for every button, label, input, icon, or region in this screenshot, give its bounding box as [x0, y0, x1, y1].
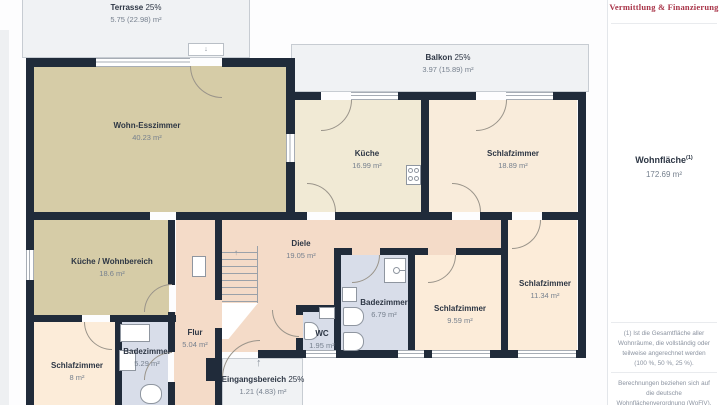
wall-segment	[334, 248, 341, 352]
wall-segment	[578, 92, 586, 358]
window	[506, 92, 553, 100]
room-label-badezimmer-679: Badezimmer 6.79 m²	[360, 297, 408, 320]
wall-segment	[480, 212, 512, 220]
footnote-calculation: Berechnungen beziehen sich auf die deuts…	[616, 379, 712, 405]
wall-segment	[26, 58, 34, 405]
divider	[611, 23, 717, 24]
floor-plan-page: ↑	[0, 0, 720, 405]
room-label-schlafzimmer-1134: Schlafzimmer 11.34 m²	[519, 278, 571, 301]
sink-icon	[319, 307, 335, 319]
divider	[611, 322, 717, 323]
window	[351, 92, 398, 100]
room-label-wc: WC 1.95 m²	[309, 328, 334, 351]
window	[286, 134, 295, 162]
wall-segment	[490, 350, 518, 358]
room-label-kueche: Küche 16.99 m²	[352, 148, 382, 171]
staircase	[222, 246, 258, 303]
window	[26, 250, 34, 280]
wall-segment	[398, 92, 476, 100]
wall-segment	[215, 220, 222, 300]
wall-segment	[421, 100, 429, 212]
wall-segment	[222, 58, 295, 67]
wall-segment	[424, 350, 432, 358]
staircase-direction-arrow: ↑	[234, 248, 238, 258]
wall-segment	[26, 212, 150, 220]
sink-icon	[342, 287, 357, 302]
wall-segment	[26, 58, 96, 67]
wall-segment	[168, 220, 175, 285]
wall-segment	[168, 382, 175, 405]
info-sidebar: Vermittlung & Finanzierung Wohnfläche(1)…	[607, 0, 720, 405]
room-label-balkon: Balkon 25% 3.97 (15.89) m²	[422, 52, 473, 75]
wall-segment	[258, 350, 296, 358]
wall-segment	[408, 248, 415, 350]
shower-icon	[384, 258, 406, 283]
wall-segment	[26, 315, 82, 322]
page-edge-strip	[0, 30, 9, 405]
stove-icon	[406, 165, 421, 185]
wall-segment	[456, 248, 501, 255]
room-label-badezimmer-529: Badezimmer 5.29 m²	[123, 346, 171, 369]
room-label-wohn-esszimmer: Wohn-Esszimmer 40.23 m²	[114, 120, 181, 143]
room-label-terrasse: Terrasse 25% 5.75 (22.98) m²	[110, 2, 161, 25]
radiator-icon	[192, 256, 206, 277]
room-label-flur: Flur 5.04 m²	[182, 327, 207, 350]
divider	[611, 372, 717, 373]
window	[398, 350, 424, 358]
wall-segment	[335, 212, 452, 220]
room-label-eingangsbereich: Eingangsbereich 25% 1.21 (4.83) m²	[222, 374, 305, 397]
wall-segment	[501, 220, 508, 350]
terrace-door-marker: ↓	[188, 43, 224, 56]
room-label-kueche-wohnbereich: Küche / Wohnbereich 18.6 m²	[71, 256, 153, 279]
entrance-arrow: ↑	[256, 358, 262, 368]
room-label-diele: Diele 19.05 m²	[286, 238, 316, 261]
footnote-marker: (1)	[686, 155, 693, 161]
entrance-door-leaf	[206, 358, 215, 381]
living-area-value: 172.69 m²	[608, 170, 720, 179]
bidet-icon	[343, 332, 364, 351]
vanity-icon	[120, 324, 150, 342]
room-label-schlafzimmer-1889: Schlafzimmer 18.89 m²	[487, 148, 539, 171]
window	[432, 350, 490, 358]
wall-segment	[380, 248, 428, 255]
living-area-label: Wohnfläche(1)	[608, 155, 720, 165]
wall-segment	[336, 350, 398, 358]
window	[96, 58, 190, 67]
broker-logo-text: Vermittlung & Finanzierung	[608, 2, 720, 12]
footnote-living-area: (1) Ist die Gesamtfläche aller Wohnräume…	[616, 329, 712, 369]
room-label-schlafzimmer-959: Schlafzimmer 9.59 m²	[434, 303, 486, 326]
window	[518, 350, 576, 358]
room-label-schlafzimmer-8: Schlafzimmer 8 m²	[51, 360, 103, 383]
toilet-icon	[140, 384, 162, 404]
wall-segment	[110, 315, 176, 322]
wall-segment	[296, 338, 303, 352]
